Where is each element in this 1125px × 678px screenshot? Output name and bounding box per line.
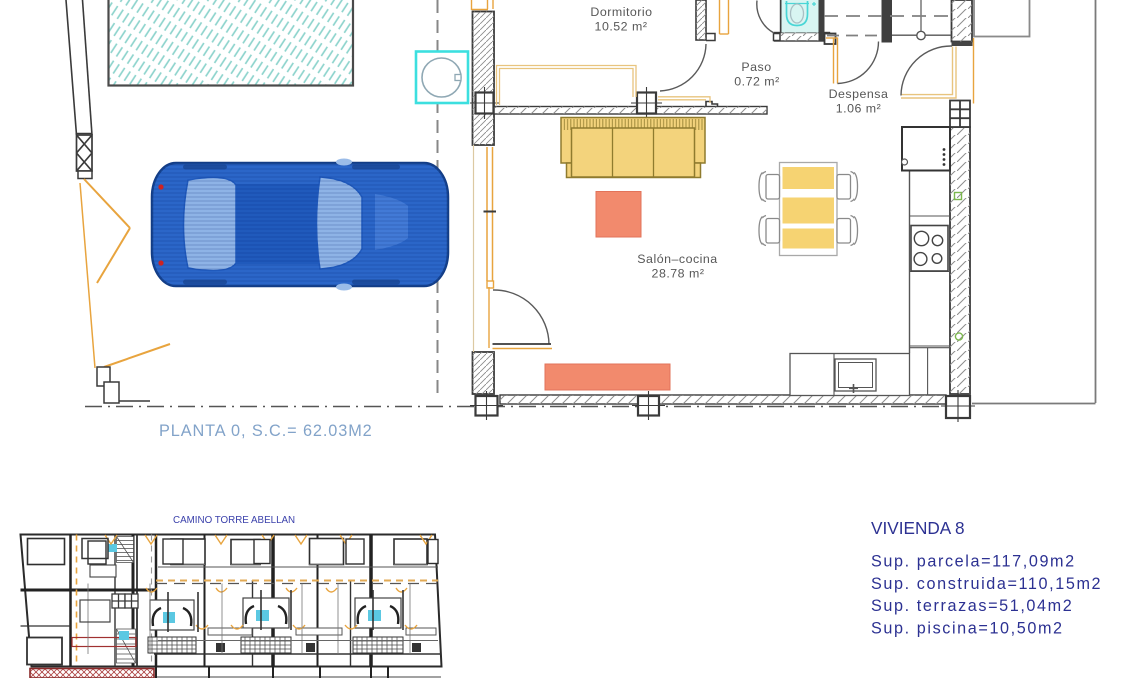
svg-text:CAMINO TORRE ABELLAN: CAMINO TORRE ABELLAN — [173, 515, 295, 526]
svg-text:1.06 m²: 1.06 m² — [836, 102, 882, 116]
svg-text:Dormitorio: Dormitorio — [590, 5, 652, 19]
svg-text:Sup. parcela=117,09m2: Sup. parcela=117,09m2 — [871, 553, 1076, 571]
svg-text:Sup. construida=110,15m2: Sup. construida=110,15m2 — [871, 575, 1102, 593]
svg-text:Despensa: Despensa — [829, 87, 889, 101]
svg-text:Paso: Paso — [741, 60, 771, 74]
svg-text:Sup. terrazas=51,04m2: Sup. terrazas=51,04m2 — [871, 597, 1073, 615]
svg-text:Sup. piscina=10,50m2: Sup. piscina=10,50m2 — [871, 620, 1064, 638]
svg-text:0.72 m²: 0.72 m² — [734, 75, 780, 89]
svg-text:10.52 m²: 10.52 m² — [595, 20, 648, 34]
svg-text:PLANTA 0, S.C.= 62.03M2: PLANTA 0, S.C.= 62.03M2 — [159, 422, 373, 440]
svg-text:VIVIENDA 8: VIVIENDA 8 — [871, 518, 965, 538]
svg-text:Salón–cocina: Salón–cocina — [637, 252, 717, 266]
svg-text:28.78 m²: 28.78 m² — [652, 267, 705, 281]
